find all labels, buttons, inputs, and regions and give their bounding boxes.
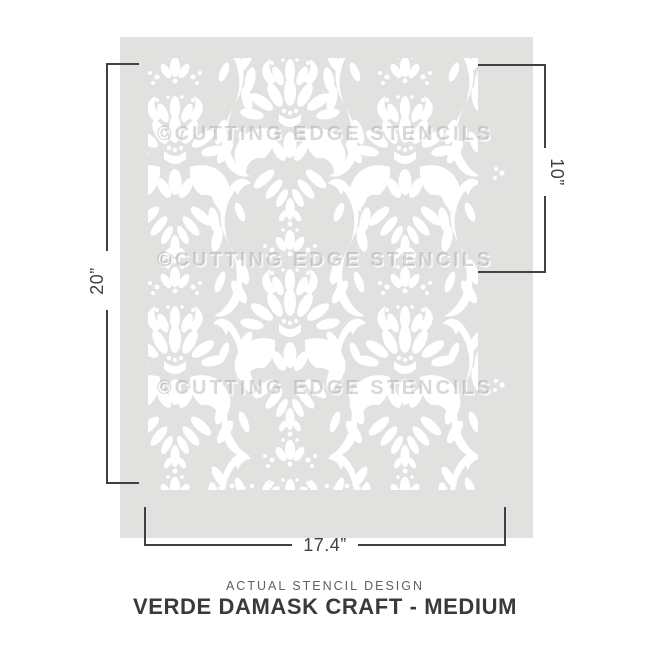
caption-subtitle: ACTUAL STENCIL DESIGN — [0, 579, 650, 593]
product-title: VERDE DAMASK CRAFT - MEDIUM — [0, 594, 650, 620]
product-image: ©CUTTING EDGE STENCILS ©CUTTING EDGE STE… — [0, 0, 650, 650]
watermark-row-2: ©CUTTING EDGE STENCILS — [0, 249, 650, 272]
registration-dots — [493, 167, 505, 392]
damask-motif-field — [120, 39, 488, 538]
partial-height-dimension-label: 10” — [547, 158, 567, 186]
watermark-row-1: ©CUTTING EDGE STENCILS — [0, 123, 650, 146]
watermark-row-3: ©CUTTING EDGE STENCILS — [0, 377, 650, 400]
damask-stencil-pattern — [120, 37, 533, 538]
width-dimension-label: 17.4” — [303, 535, 347, 555]
